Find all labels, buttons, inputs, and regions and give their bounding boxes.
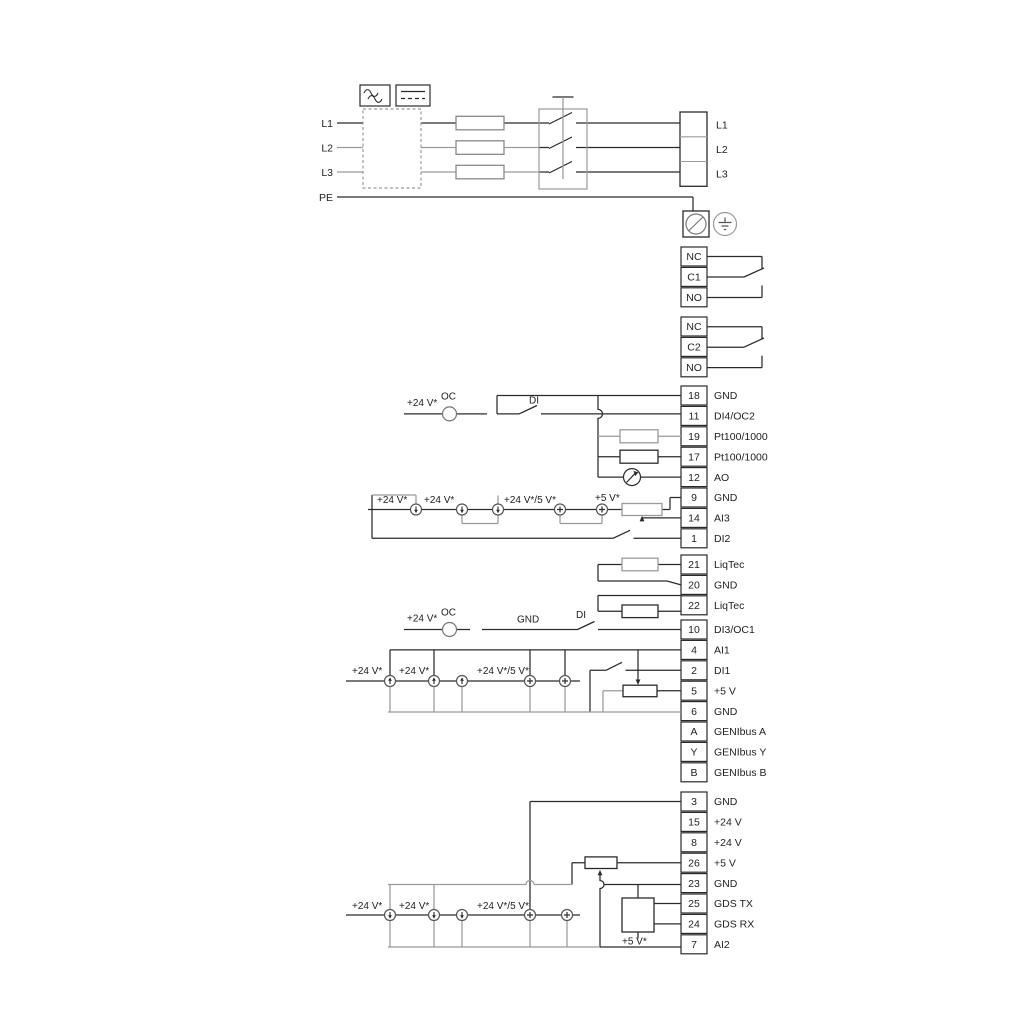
terminal-number: 3 bbox=[691, 796, 697, 808]
potentiometer-icon bbox=[623, 685, 657, 697]
terminal-number: 23 bbox=[688, 878, 700, 890]
terminal-number: 25 bbox=[688, 898, 700, 910]
terminal-number: 22 bbox=[688, 600, 700, 612]
terminal-number: 9 bbox=[691, 492, 697, 504]
terminal-number: 12 bbox=[688, 472, 700, 484]
terminal-label: AI2 bbox=[714, 939, 730, 951]
io4-section: 3GND15+24 V8+24 V26+5 V23GND25GDS TX24GD… bbox=[346, 792, 754, 954]
v24-label: +24 V* bbox=[352, 666, 382, 677]
terminal-row: 4AI1 bbox=[681, 640, 730, 659]
terminal-number: 26 bbox=[688, 857, 700, 869]
potentiometer-icon bbox=[622, 504, 662, 516]
terminal-number: NO bbox=[686, 362, 702, 374]
terminals-io2: 21LiqTec20GND22LiqTec bbox=[681, 555, 744, 615]
terminal-label: GND bbox=[714, 580, 738, 592]
terminal-number: 18 bbox=[688, 390, 700, 402]
v24-label: +24 V* bbox=[407, 398, 437, 409]
terminal-number: 6 bbox=[691, 706, 697, 718]
terminal-label: Pt100/1000 bbox=[714, 451, 768, 463]
resistor-icon bbox=[620, 450, 658, 463]
terminal-row: 5+5 V bbox=[681, 681, 736, 700]
current-source-icon bbox=[457, 504, 468, 515]
terminal-number: 5 bbox=[691, 685, 697, 697]
relay1-contact bbox=[707, 257, 764, 298]
terminal-row: 6GND bbox=[681, 702, 738, 721]
gnd-label: GND bbox=[517, 615, 539, 626]
liqtec-sensor-icon bbox=[622, 605, 658, 618]
label-l3-out: L3 bbox=[716, 169, 728, 181]
terminal-label: DI1 bbox=[714, 665, 731, 677]
terminal-row: 21LiqTec bbox=[681, 555, 744, 574]
v24v5-label: +24 V*/5 V* bbox=[504, 495, 556, 506]
power-input-section: L1 L2 L3 PE L1 L2 L3 bbox=[319, 85, 737, 237]
current-source-icon bbox=[429, 676, 440, 687]
label-l1-out: L1 bbox=[716, 119, 728, 131]
terminal-row: 8+24 V bbox=[681, 833, 742, 852]
terminal-row: 22LiqTec bbox=[681, 596, 744, 615]
current-source-icon bbox=[457, 676, 468, 687]
pot-wiper-arrow bbox=[640, 516, 645, 522]
terminal-row: AGENIbus A bbox=[681, 722, 766, 741]
v24-label: +24 V* bbox=[352, 901, 382, 912]
wiring-diagram-canvas: L1 L2 L3 PE L1 L2 L3 bbox=[0, 0, 1024, 1024]
open-collector-icon bbox=[443, 623, 457, 637]
label-l1-in: L1 bbox=[321, 118, 333, 130]
terminal-row: YGENIbus Y bbox=[681, 742, 766, 761]
terminal-label: GND bbox=[714, 492, 738, 504]
terminal-row: NC bbox=[681, 317, 707, 336]
terminal-number: 19 bbox=[688, 431, 700, 443]
terminal-number: 14 bbox=[688, 513, 700, 525]
terminal-number: NO bbox=[686, 292, 702, 304]
terminal-label: AI3 bbox=[714, 513, 730, 525]
terminal-row: 9GND bbox=[681, 488, 738, 507]
terminal-number: 2 bbox=[691, 665, 697, 677]
terminal-row: NO bbox=[681, 288, 707, 307]
terminal-label: LiqTec bbox=[714, 600, 744, 612]
di-label: DI bbox=[529, 396, 539, 407]
current-source-icon bbox=[385, 910, 396, 921]
terminal-row: 3GND bbox=[681, 792, 738, 811]
label-l2-out: L2 bbox=[716, 144, 728, 156]
terminal-label: GENIbus Y bbox=[714, 747, 766, 759]
v24v5-label: +24 V*/5 V* bbox=[477, 901, 529, 912]
voltage-source-icon bbox=[525, 676, 536, 687]
pot-wiper-arrow bbox=[636, 680, 641, 685]
terminal-row: 24GDS RX bbox=[681, 914, 754, 933]
terminal-number: 8 bbox=[691, 837, 697, 849]
gds-sensor-box bbox=[622, 898, 654, 932]
fuse-icon bbox=[456, 165, 504, 179]
current-source-icon bbox=[411, 504, 422, 515]
terminal-row: 15+24 V bbox=[681, 812, 742, 831]
terminal-label: DI3/OC1 bbox=[714, 624, 755, 636]
label-pe-in: PE bbox=[319, 192, 333, 204]
terminal-number: 11 bbox=[689, 411, 700, 423]
v5-label: +5 V* bbox=[622, 937, 647, 948]
terminal-number: 7 bbox=[691, 939, 697, 951]
terminals-io4: 3GND15+24 V8+24 V26+5 V23GND25GDS TX24GD… bbox=[681, 792, 754, 954]
terminal-label: GENIbus A bbox=[714, 726, 766, 738]
terminal-row: 26+5 V bbox=[681, 853, 736, 872]
terminal-label: Pt100/1000 bbox=[714, 431, 768, 443]
wiring-diagram: L1 L2 L3 PE L1 L2 L3 bbox=[0, 0, 1024, 1024]
terminal-label: DI4/OC2 bbox=[714, 411, 755, 423]
terminal-label: GDS TX bbox=[714, 898, 753, 910]
terminal-number: A bbox=[690, 726, 697, 738]
terminal-label: GND bbox=[714, 706, 738, 718]
terminal-label: +24 V bbox=[714, 817, 742, 829]
io1-section: 18GND11DI4/OC219Pt100/100017Pt100/100012… bbox=[368, 386, 768, 548]
terminal-number: NC bbox=[686, 321, 702, 333]
terminal-number: NC bbox=[686, 251, 702, 263]
terminal-label: +5 V bbox=[714, 685, 736, 697]
terminals-relay2: NCC2NO bbox=[681, 317, 707, 377]
liqtec-sensor-icon bbox=[622, 558, 658, 571]
relay2-contact bbox=[707, 327, 764, 368]
terminal-number: C1 bbox=[687, 272, 701, 284]
relay2-section: NCC2NO bbox=[681, 317, 764, 377]
terminal-row: 18GND bbox=[681, 386, 738, 405]
v24-label: +24 V* bbox=[399, 666, 429, 677]
terminal-label: GND bbox=[714, 796, 738, 808]
terminal-label: AI1 bbox=[714, 645, 730, 657]
io1-wires-dark bbox=[368, 396, 681, 539]
terminal-row: C1 bbox=[681, 267, 707, 286]
voltage-source-icon bbox=[555, 504, 566, 515]
terminal-row: 11DI4/OC2 bbox=[681, 406, 755, 425]
terminal-label: +24 V bbox=[714, 837, 742, 849]
power-wires-dark bbox=[337, 97, 693, 211]
terminal-number: 1 bbox=[691, 533, 697, 545]
relay1-section: NCC1NO bbox=[681, 247, 764, 307]
ac-symbol-icon bbox=[360, 85, 390, 106]
rfi-filter-box bbox=[363, 109, 421, 188]
terminal-row: 10DI3/OC1 bbox=[681, 620, 755, 639]
power-output-block bbox=[680, 112, 707, 186]
v5-label: +5 V* bbox=[595, 493, 620, 504]
v24-label: +24 V* bbox=[377, 495, 407, 506]
v24-label: +24 V* bbox=[399, 901, 429, 912]
terminal-row: NC bbox=[681, 247, 707, 266]
terminal-label: GND bbox=[714, 390, 738, 402]
terminal-row: 7AI2 bbox=[681, 935, 730, 954]
dc-symbol-icon bbox=[396, 85, 430, 106]
current-source-icon bbox=[385, 676, 396, 687]
v24-label: +24 V* bbox=[407, 614, 437, 625]
open-collector-icon bbox=[443, 407, 457, 421]
io2-wires-dark bbox=[598, 565, 681, 612]
terminal-row: 2DI1 bbox=[681, 661, 731, 680]
terminal-label: DI2 bbox=[714, 533, 731, 545]
voltage-source-icon bbox=[562, 910, 573, 921]
label-l2-in: L2 bbox=[321, 143, 333, 155]
label-l3-in: L3 bbox=[321, 167, 333, 179]
terminal-number: Y bbox=[690, 747, 697, 759]
terminal-row: 17Pt100/1000 bbox=[681, 447, 768, 466]
terminal-row: BGENIbus B bbox=[681, 763, 767, 782]
io2-section: 21LiqTec20GND22LiqTec bbox=[598, 555, 744, 618]
terminal-row: 19Pt100/1000 bbox=[681, 427, 768, 446]
pot-wiper-arrow bbox=[598, 870, 603, 875]
potentiometer-icon bbox=[585, 857, 617, 869]
earth-icon bbox=[714, 213, 737, 236]
terminal-number: 15 bbox=[688, 817, 700, 829]
terminal-label: +5 V bbox=[714, 857, 736, 869]
terminal-row: NO bbox=[681, 358, 707, 377]
oc-label: OC bbox=[441, 392, 456, 403]
terminal-number: 24 bbox=[688, 919, 700, 931]
terminals-relay1: NCC1NO bbox=[681, 247, 707, 307]
terminal-label: LiqTec bbox=[714, 559, 744, 571]
terminal-label: GND bbox=[714, 878, 738, 890]
terminal-label: AO bbox=[714, 472, 729, 484]
v24-label: +24 V* bbox=[424, 495, 454, 506]
terminal-number: B bbox=[690, 767, 697, 779]
voltage-source-icon bbox=[597, 504, 608, 515]
voltage-source-icon bbox=[560, 676, 571, 687]
terminal-row: 25GDS TX bbox=[681, 894, 753, 913]
io3-section: 10DI3/OC14AI12DI15+5 V6GNDAGENIbus AYGEN… bbox=[346, 608, 767, 782]
voltage-source-icon bbox=[525, 910, 536, 921]
terminal-row: 12AO bbox=[681, 468, 729, 487]
oc-label: OC bbox=[441, 608, 456, 619]
terminal-number: 21 bbox=[688, 559, 700, 571]
terminal-row: 20GND bbox=[681, 575, 738, 594]
current-source-icon bbox=[493, 504, 504, 515]
terminals-io3: 10DI3/OC14AI12DI15+5 V6GNDAGENIbus AYGEN… bbox=[681, 620, 767, 782]
terminal-row: 23GND bbox=[681, 874, 738, 893]
terminal-number: 20 bbox=[688, 580, 700, 592]
terminal-label: GENIbus B bbox=[714, 767, 767, 779]
di-label: DI bbox=[576, 610, 586, 621]
terminal-number: 4 bbox=[691, 645, 697, 657]
terminal-row: 14AI3 bbox=[681, 508, 730, 527]
terminal-row: C2 bbox=[681, 337, 707, 356]
terminal-number: 17 bbox=[688, 451, 700, 463]
terminal-number: 10 bbox=[688, 624, 700, 636]
current-source-icon bbox=[457, 910, 468, 921]
v24v5-label: +24 V*/5 V* bbox=[477, 666, 529, 677]
current-source-icon bbox=[429, 910, 440, 921]
resistor-icon bbox=[620, 430, 658, 443]
terminals-io1: 18GND11DI4/OC219Pt100/100017Pt100/100012… bbox=[681, 386, 768, 548]
terminal-number: C2 bbox=[687, 342, 701, 354]
analog-output-meter-icon bbox=[624, 469, 641, 486]
ground-terminal-icon bbox=[683, 211, 709, 237]
fuse-icon bbox=[456, 116, 504, 130]
terminal-label: GDS RX bbox=[714, 919, 754, 931]
fuse-icon bbox=[456, 141, 504, 155]
terminal-row: 1DI2 bbox=[681, 529, 731, 548]
